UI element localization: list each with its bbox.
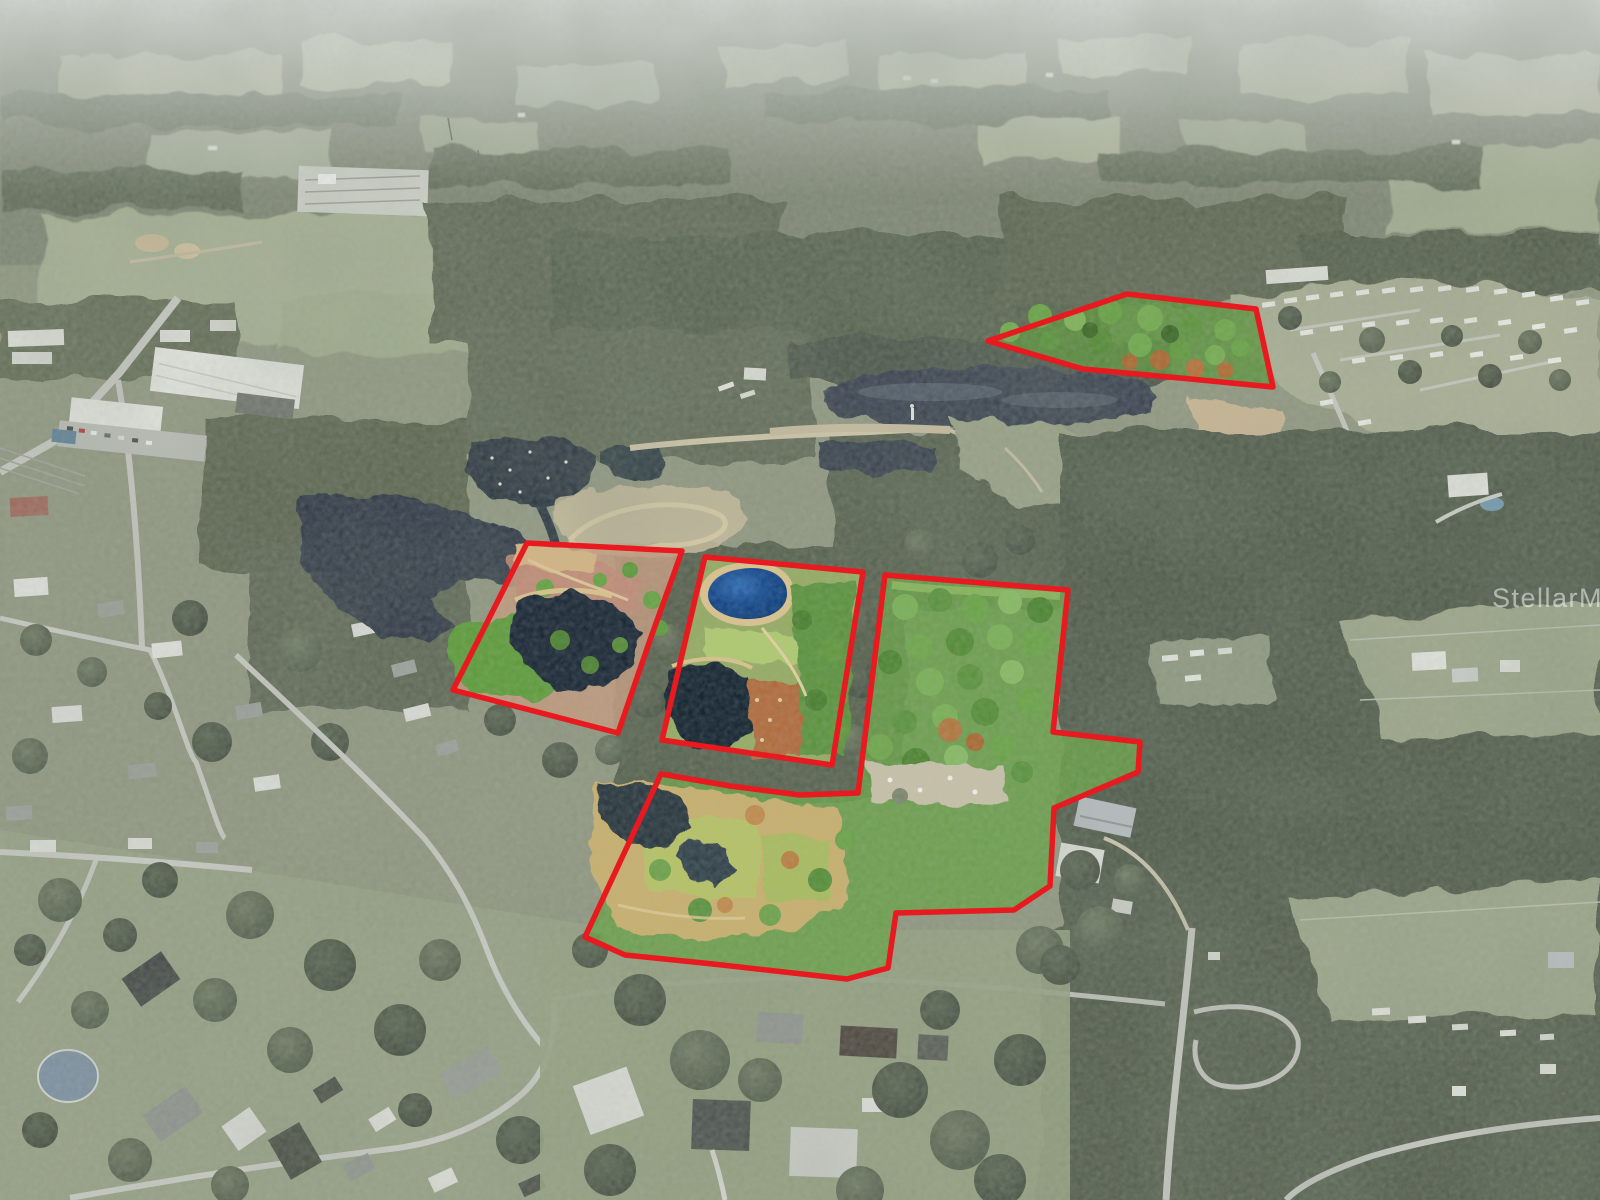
- photo-grain: [0, 0, 1600, 1200]
- stellar-mls-watermark: StellarMLS: [1492, 583, 1600, 613]
- aerial-photo: StellarMLS: [0, 0, 1600, 1200]
